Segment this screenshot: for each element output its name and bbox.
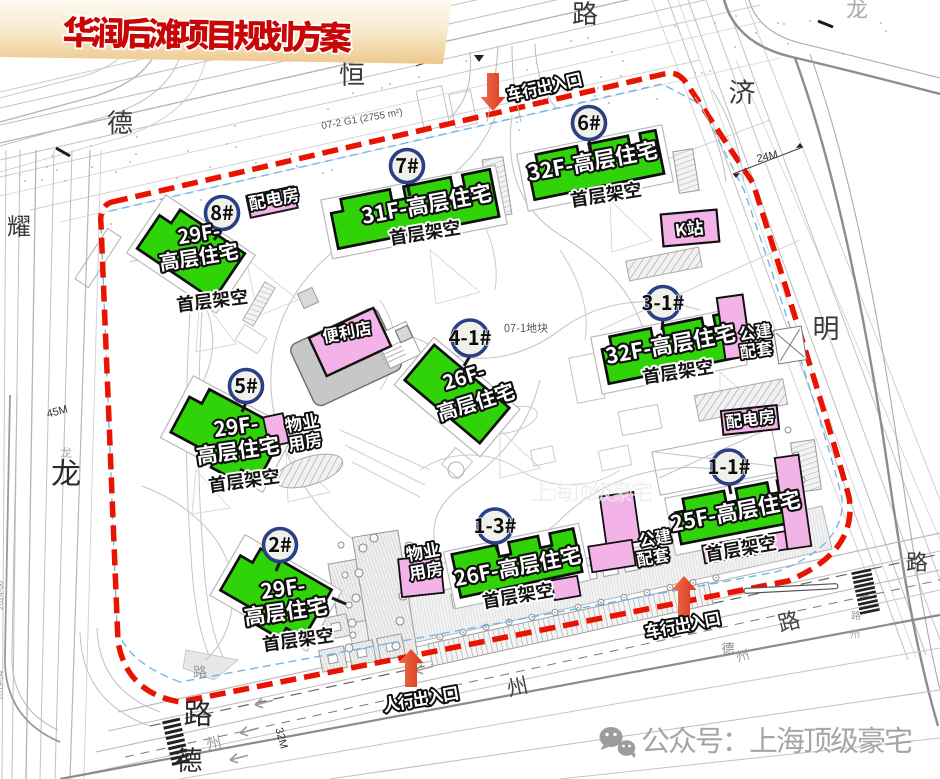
- svg-text:2019-04: 2019-04: [0, 670, 5, 700]
- svg-text:2024-06: 2024-06: [0, 580, 5, 610]
